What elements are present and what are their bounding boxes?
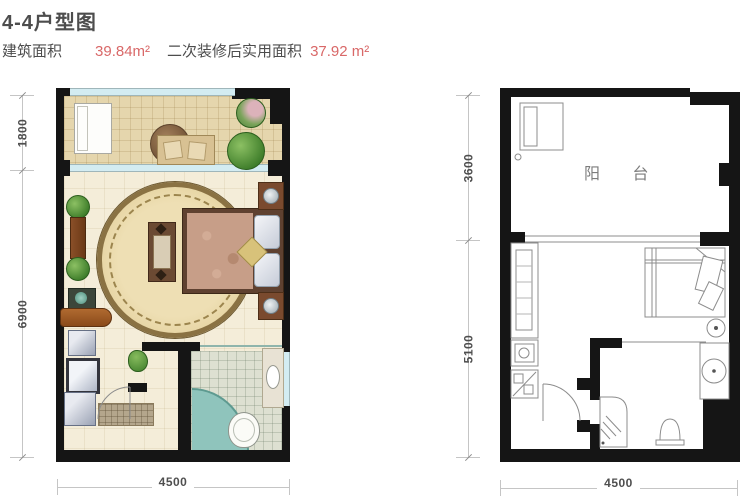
washing-machine-icon (515, 103, 563, 160)
stove-icon (511, 370, 538, 398)
dim-label-4500-right: 4500 (500, 484, 737, 498)
balcony-room-label: 阳 台 (584, 160, 662, 184)
entry-door (543, 384, 580, 421)
dim-label-6900: 6900 (15, 300, 29, 329)
built-area-value: 39.84m² (95, 43, 150, 60)
entry-door-arc (98, 387, 130, 419)
entry-door-arc (543, 384, 580, 421)
line-floor-plan: 阳 台 (500, 88, 740, 462)
line-plan-drawing (500, 88, 740, 462)
page-title: 4-4户型图 (2, 6, 97, 35)
dim-line-vertical (22, 95, 23, 457)
dim-tick (737, 480, 738, 496)
balcony-slider (525, 236, 700, 242)
bed-outline-icon (645, 248, 725, 337)
kitchen-counter (511, 243, 538, 338)
left-plan-door-arcs (56, 88, 290, 462)
usable-area-label: 二次装修后实用面积 (167, 40, 302, 61)
toilet-icon (656, 419, 684, 445)
floorplan-page: { "header": { "title": "4-4户型图", "area":… (0, 0, 750, 500)
area-info-line: 建筑面积 39.84m² 二次装修后实用面积 37.92 m² (2, 40, 369, 61)
washbasin-icon (700, 343, 729, 399)
furnished-floor-plan (56, 88, 290, 462)
dim-label-5100: 5100 (461, 335, 475, 364)
dim-label-1800: 1800 (15, 119, 29, 148)
dim-tick (289, 479, 290, 495)
shower-enclosure-icon (600, 397, 627, 447)
usable-area-value: 37.92 m² (310, 43, 369, 60)
dim-line-vertical (468, 95, 469, 457)
dim-label-3600: 3600 (461, 154, 475, 183)
dim-label-4500-left: 4500 (57, 483, 289, 497)
built-area-label: 建筑面积 (2, 40, 62, 61)
kitchen-sink-icon (511, 340, 538, 366)
